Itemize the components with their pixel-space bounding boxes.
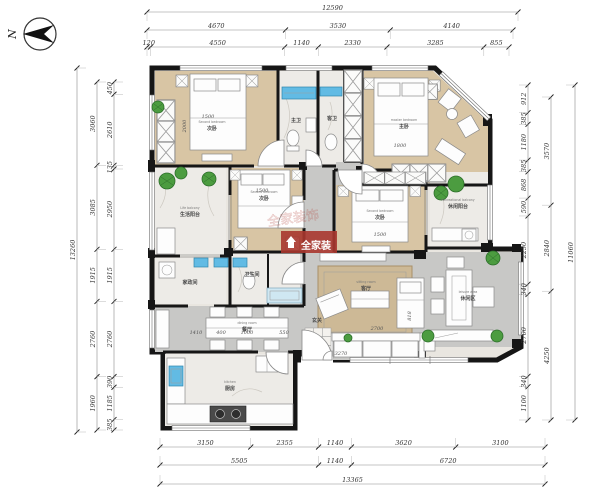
room-label: 客卫: [326, 115, 337, 122]
inner-dimension: 3270: [335, 351, 349, 357]
room-label: sitting room: [356, 280, 375, 284]
dimension-value: 3285: [427, 39, 444, 47]
dimension-value: 912: [520, 93, 528, 105]
dimension-value: 590: [520, 201, 528, 213]
room-label: 生活阳台: [180, 211, 200, 218]
dimension-value: 3530: [330, 22, 347, 30]
plant-icon: [422, 330, 434, 342]
dimension-chain: 45026101352950191527603901185385: [106, 80, 123, 433]
dimension-chain: 9123851180385868590225034027003401100: [519, 83, 531, 423]
dimension-value: 1185: [106, 395, 114, 412]
chair: [431, 277, 444, 292]
dimension-value: 5505: [231, 457, 248, 465]
dimension-value: 2250: [520, 242, 528, 260]
dimension-chain: 550511406720: [158, 456, 548, 468]
dimension-value: 340: [520, 283, 528, 295]
room-label: 休闲阳台: [447, 203, 468, 210]
sink: [306, 118, 316, 132]
dimension-value: 3060: [89, 115, 97, 132]
dimension-value: 3085: [89, 199, 97, 216]
dimension-value: 1915: [106, 267, 114, 284]
room-label: 次卧: [375, 214, 385, 221]
dimension-value: 12590: [322, 4, 343, 12]
dimension-value: 3570: [543, 143, 551, 160]
plant-icon: [448, 176, 464, 192]
dimension-value: 2700: [520, 327, 528, 345]
dimension-value: 4670: [207, 22, 225, 30]
pillow: [194, 79, 216, 91]
toilet: [325, 134, 337, 150]
tv-console: [320, 253, 386, 261]
watermark-text: 全家装: [300, 239, 331, 252]
dimension-value: 855: [490, 39, 502, 47]
dimension-chain: 30603085191527601960: [89, 80, 106, 433]
dimension-value: 2330: [343, 39, 361, 47]
inner-dimension: 1500: [374, 232, 388, 238]
floor-plan-canvas: N: [0, 0, 600, 495]
north-arrow: N: [6, 18, 56, 50]
hall-closet: [344, 70, 362, 162]
chair: [237, 307, 252, 317]
sideboard: [156, 310, 169, 348]
cabinet: [157, 228, 175, 254]
plant-icon: [344, 334, 352, 342]
toilet: [287, 130, 299, 146]
room-label: Life balcony: [180, 206, 199, 210]
inner-dimension: 1500: [202, 114, 216, 120]
bathtub: [267, 288, 302, 303]
dimension-value: 2610: [106, 122, 114, 140]
dimension-chain: 12590: [145, 4, 521, 21]
plant-icon: [202, 172, 216, 186]
room-label: master bedroom: [391, 118, 418, 122]
inner-dimension: 1800: [394, 143, 408, 149]
room-label: 主卫: [291, 117, 301, 124]
dimension-value: 1140: [293, 39, 310, 47]
dimension-value: 390: [106, 376, 114, 388]
pillow: [218, 79, 240, 91]
dimension-value: 3100: [492, 439, 509, 447]
room-label: 厨房: [225, 385, 235, 392]
dimension-value: 135: [106, 161, 114, 173]
sink: [214, 258, 228, 267]
room-label: 客厅: [360, 285, 371, 292]
sofa-seat: [363, 341, 391, 357]
entry: [301, 328, 333, 364]
room-label: Second bedroom: [367, 209, 394, 213]
inner-dimension: 2000: [182, 119, 188, 134]
dimension-value: 385: [520, 112, 528, 124]
chair: [237, 340, 252, 350]
dimension-chain: 467035304140: [145, 22, 516, 39]
dimension-value: 11060: [567, 242, 575, 263]
room-label: 家政间: [182, 279, 197, 286]
dimension-value: 2760: [89, 331, 97, 349]
dimension-value: 6720: [440, 457, 457, 465]
room-label: 卫生间: [244, 271, 259, 278]
inner-dimension: 1000: [241, 330, 255, 336]
room-label: 玄关: [312, 317, 322, 324]
coffee-table: [351, 291, 389, 308]
dimension-value: 120: [143, 39, 155, 47]
pillow: [400, 282, 421, 293]
wardrobe: [364, 172, 426, 184]
plant-icon: [175, 167, 187, 179]
inner-dimension: 1410: [190, 330, 204, 336]
dimension-chain: 1204550114023303285855: [143, 39, 512, 56]
dimension-value: 3150: [197, 439, 214, 447]
dimension-value: 1140: [327, 457, 344, 465]
chair: [210, 307, 225, 317]
inner-dimension: 400: [215, 330, 226, 336]
dimension-value: 1180: [520, 134, 528, 151]
room-label: 主卧: [399, 123, 409, 130]
room-label: Recreational balcony: [441, 198, 474, 202]
room-label: Second bedroom: [199, 120, 226, 124]
dimension-chain: 357028404250: [542, 95, 554, 423]
dimension-value: 2950: [106, 201, 114, 219]
room-label: 次卧: [259, 195, 269, 202]
dimension-value: 385: [106, 419, 114, 431]
dimension-value: 385: [520, 160, 528, 172]
pillow: [378, 83, 400, 96]
side-table: [447, 109, 458, 120]
dimension-value: 450: [106, 82, 114, 95]
dimension-chain: 13365: [158, 475, 548, 487]
chair: [264, 307, 279, 317]
dimension-value: 1100: [520, 395, 528, 412]
sink-counter: [320, 87, 342, 96]
inner-dimension: 1500: [256, 188, 270, 194]
pillow: [263, 174, 284, 185]
bed-bench: [202, 154, 232, 161]
chair: [210, 340, 225, 350]
dimension-value: 1140: [327, 439, 344, 447]
floor-plan-page: N: [0, 0, 600, 495]
dimension-value: 2840: [543, 240, 551, 258]
inner-dimension: 2700: [370, 326, 385, 332]
room-label: 休闲区: [459, 295, 475, 302]
dimension-value: 1960: [89, 395, 97, 412]
room-label: dining room: [237, 321, 256, 325]
room-label: leisure area: [459, 290, 478, 294]
inner-dimension: 550: [279, 330, 289, 336]
inner-dimension: 818: [407, 311, 413, 321]
dimension-value: 4140: [442, 22, 460, 30]
dimension-value: 2760: [106, 331, 114, 349]
sink: [233, 258, 247, 267]
dimension-value: 868: [520, 179, 528, 191]
bed-bench: [362, 246, 390, 252]
dimension-value: 2355: [275, 439, 293, 447]
dimension-chain: 31502355114036203100: [158, 438, 548, 450]
plant-icon: [491, 330, 503, 342]
dimension-value: 13365: [342, 476, 363, 484]
sink: [194, 258, 208, 267]
dimension-value: 3620: [395, 439, 412, 447]
pillow: [380, 190, 403, 201]
chair: [447, 257, 464, 268]
sofa-seat: [392, 341, 418, 357]
chair: [431, 299, 444, 314]
chair: [264, 340, 279, 350]
dimension-chain: 11060: [566, 83, 578, 423]
washing-machine: [159, 262, 175, 278]
pillow: [402, 83, 424, 96]
room-label: 次卧: [207, 125, 217, 132]
dimension-chain: 13260: [69, 66, 86, 435]
dimension-value: 1915: [89, 267, 97, 284]
dimension-value: 4250: [543, 347, 551, 365]
north-label: N: [6, 29, 19, 40]
dimension-value: 4550: [208, 39, 226, 47]
bench: [429, 330, 493, 341]
dimension-value: 13260: [69, 240, 77, 261]
pillow: [241, 174, 262, 185]
dimension-value: 340: [520, 375, 528, 387]
room-label: kitchen: [224, 380, 236, 384]
